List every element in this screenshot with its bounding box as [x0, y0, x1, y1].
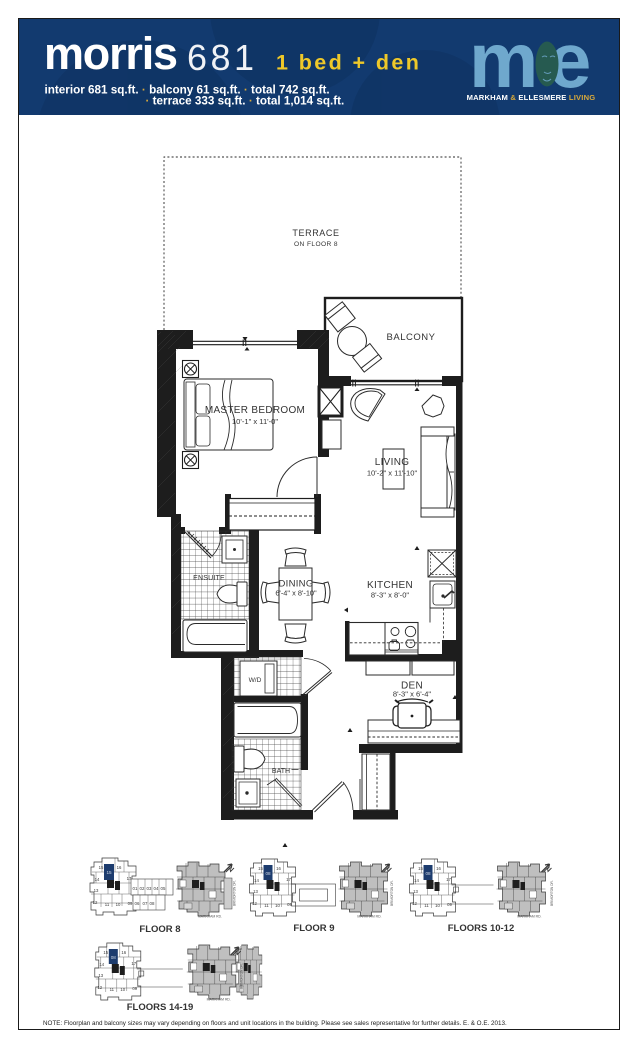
- svg-text:06: 06: [135, 901, 140, 906]
- svg-text:BRIMORTON DR.: BRIMORTON DR.: [550, 880, 554, 906]
- svg-text:ON FLOOR 8: ON FLOOR 8: [294, 241, 338, 248]
- svg-text:ENSUITE: ENSUITE: [193, 575, 225, 582]
- svg-text:MARKHAM & ELLESMERE LIVING: MARKHAM & ELLESMERE LIVING: [467, 93, 596, 102]
- svg-text:08: 08: [111, 955, 117, 960]
- svg-text:15: 15: [106, 870, 112, 875]
- svg-text:08: 08: [425, 871, 431, 876]
- svg-text:02: 02: [140, 886, 145, 891]
- svg-text:MARKHAM RD.: MARKHAM RD.: [357, 915, 381, 919]
- svg-text:04: 04: [154, 886, 159, 891]
- svg-text:MARKHAM RD.: MARKHAM RD.: [198, 915, 222, 919]
- svg-text:MARKHAM RD.: MARKHAM RD.: [207, 998, 231, 1002]
- svg-text:W/D: W/D: [249, 677, 262, 684]
- svg-text:FLOOR 9: FLOOR 9: [293, 923, 334, 934]
- svg-text:TERRACE: TERRACE: [292, 228, 339, 238]
- svg-text:01: 01: [133, 886, 138, 891]
- svg-text:m: m: [469, 16, 538, 104]
- svg-text:NOTE: Floorplan and balcony si: NOTE: Floorplan and balcony sizes may va…: [43, 1020, 507, 1027]
- svg-text:BRIMORTON DR.: BRIMORTON DR.: [233, 880, 237, 906]
- svg-text:morris: morris: [44, 28, 177, 79]
- svg-text:FLOORS 14-19: FLOORS 14-19: [127, 1002, 194, 1013]
- svg-text:1 bed + den: 1 bed + den: [276, 51, 421, 75]
- svg-text:681: 681: [187, 37, 258, 78]
- svg-text:KITCHEN: KITCHEN: [367, 580, 413, 591]
- svg-text:BATH: BATH: [272, 768, 290, 775]
- svg-text:8'-3" x 8'-0": 8'-3" x 8'-0": [371, 591, 410, 600]
- svg-text:BRIMORTON DR.: BRIMORTON DR.: [239, 963, 243, 989]
- svg-text:10'-1" x 11'-0": 10'-1" x 11'-0": [232, 417, 278, 426]
- svg-text:FLOORS 10-12: FLOORS 10-12: [448, 923, 515, 934]
- svg-text:8'-3" x 6'-4": 8'-3" x 6'-4": [393, 690, 432, 699]
- svg-text:08: 08: [150, 901, 155, 906]
- svg-text:08: 08: [265, 871, 271, 876]
- svg-text:FLOOR 8: FLOOR 8: [139, 924, 180, 935]
- svg-text:BALCONY: BALCONY: [387, 332, 436, 343]
- svg-text:LIVING: LIVING: [375, 457, 410, 468]
- svg-text:10'-2" x 11'-10": 10'-2" x 11'-10": [367, 469, 418, 478]
- svg-text:07: 07: [143, 901, 148, 906]
- svg-text:MARKHAM RD.: MARKHAM RD.: [517, 915, 541, 919]
- svg-text:MASTER BEDROOM: MASTER BEDROOM: [205, 405, 305, 416]
- svg-text:BRIMORTON DR.: BRIMORTON DR.: [390, 880, 394, 906]
- svg-text:· terrace 333 sq.ft. · total 1: · terrace 333 sq.ft. · total 1,014 sq.ft…: [146, 95, 345, 108]
- svg-text:6'-4" x 8'-10": 6'-4" x 8'-10": [275, 589, 317, 598]
- svg-text:03: 03: [147, 886, 152, 891]
- svg-text:05: 05: [161, 886, 166, 891]
